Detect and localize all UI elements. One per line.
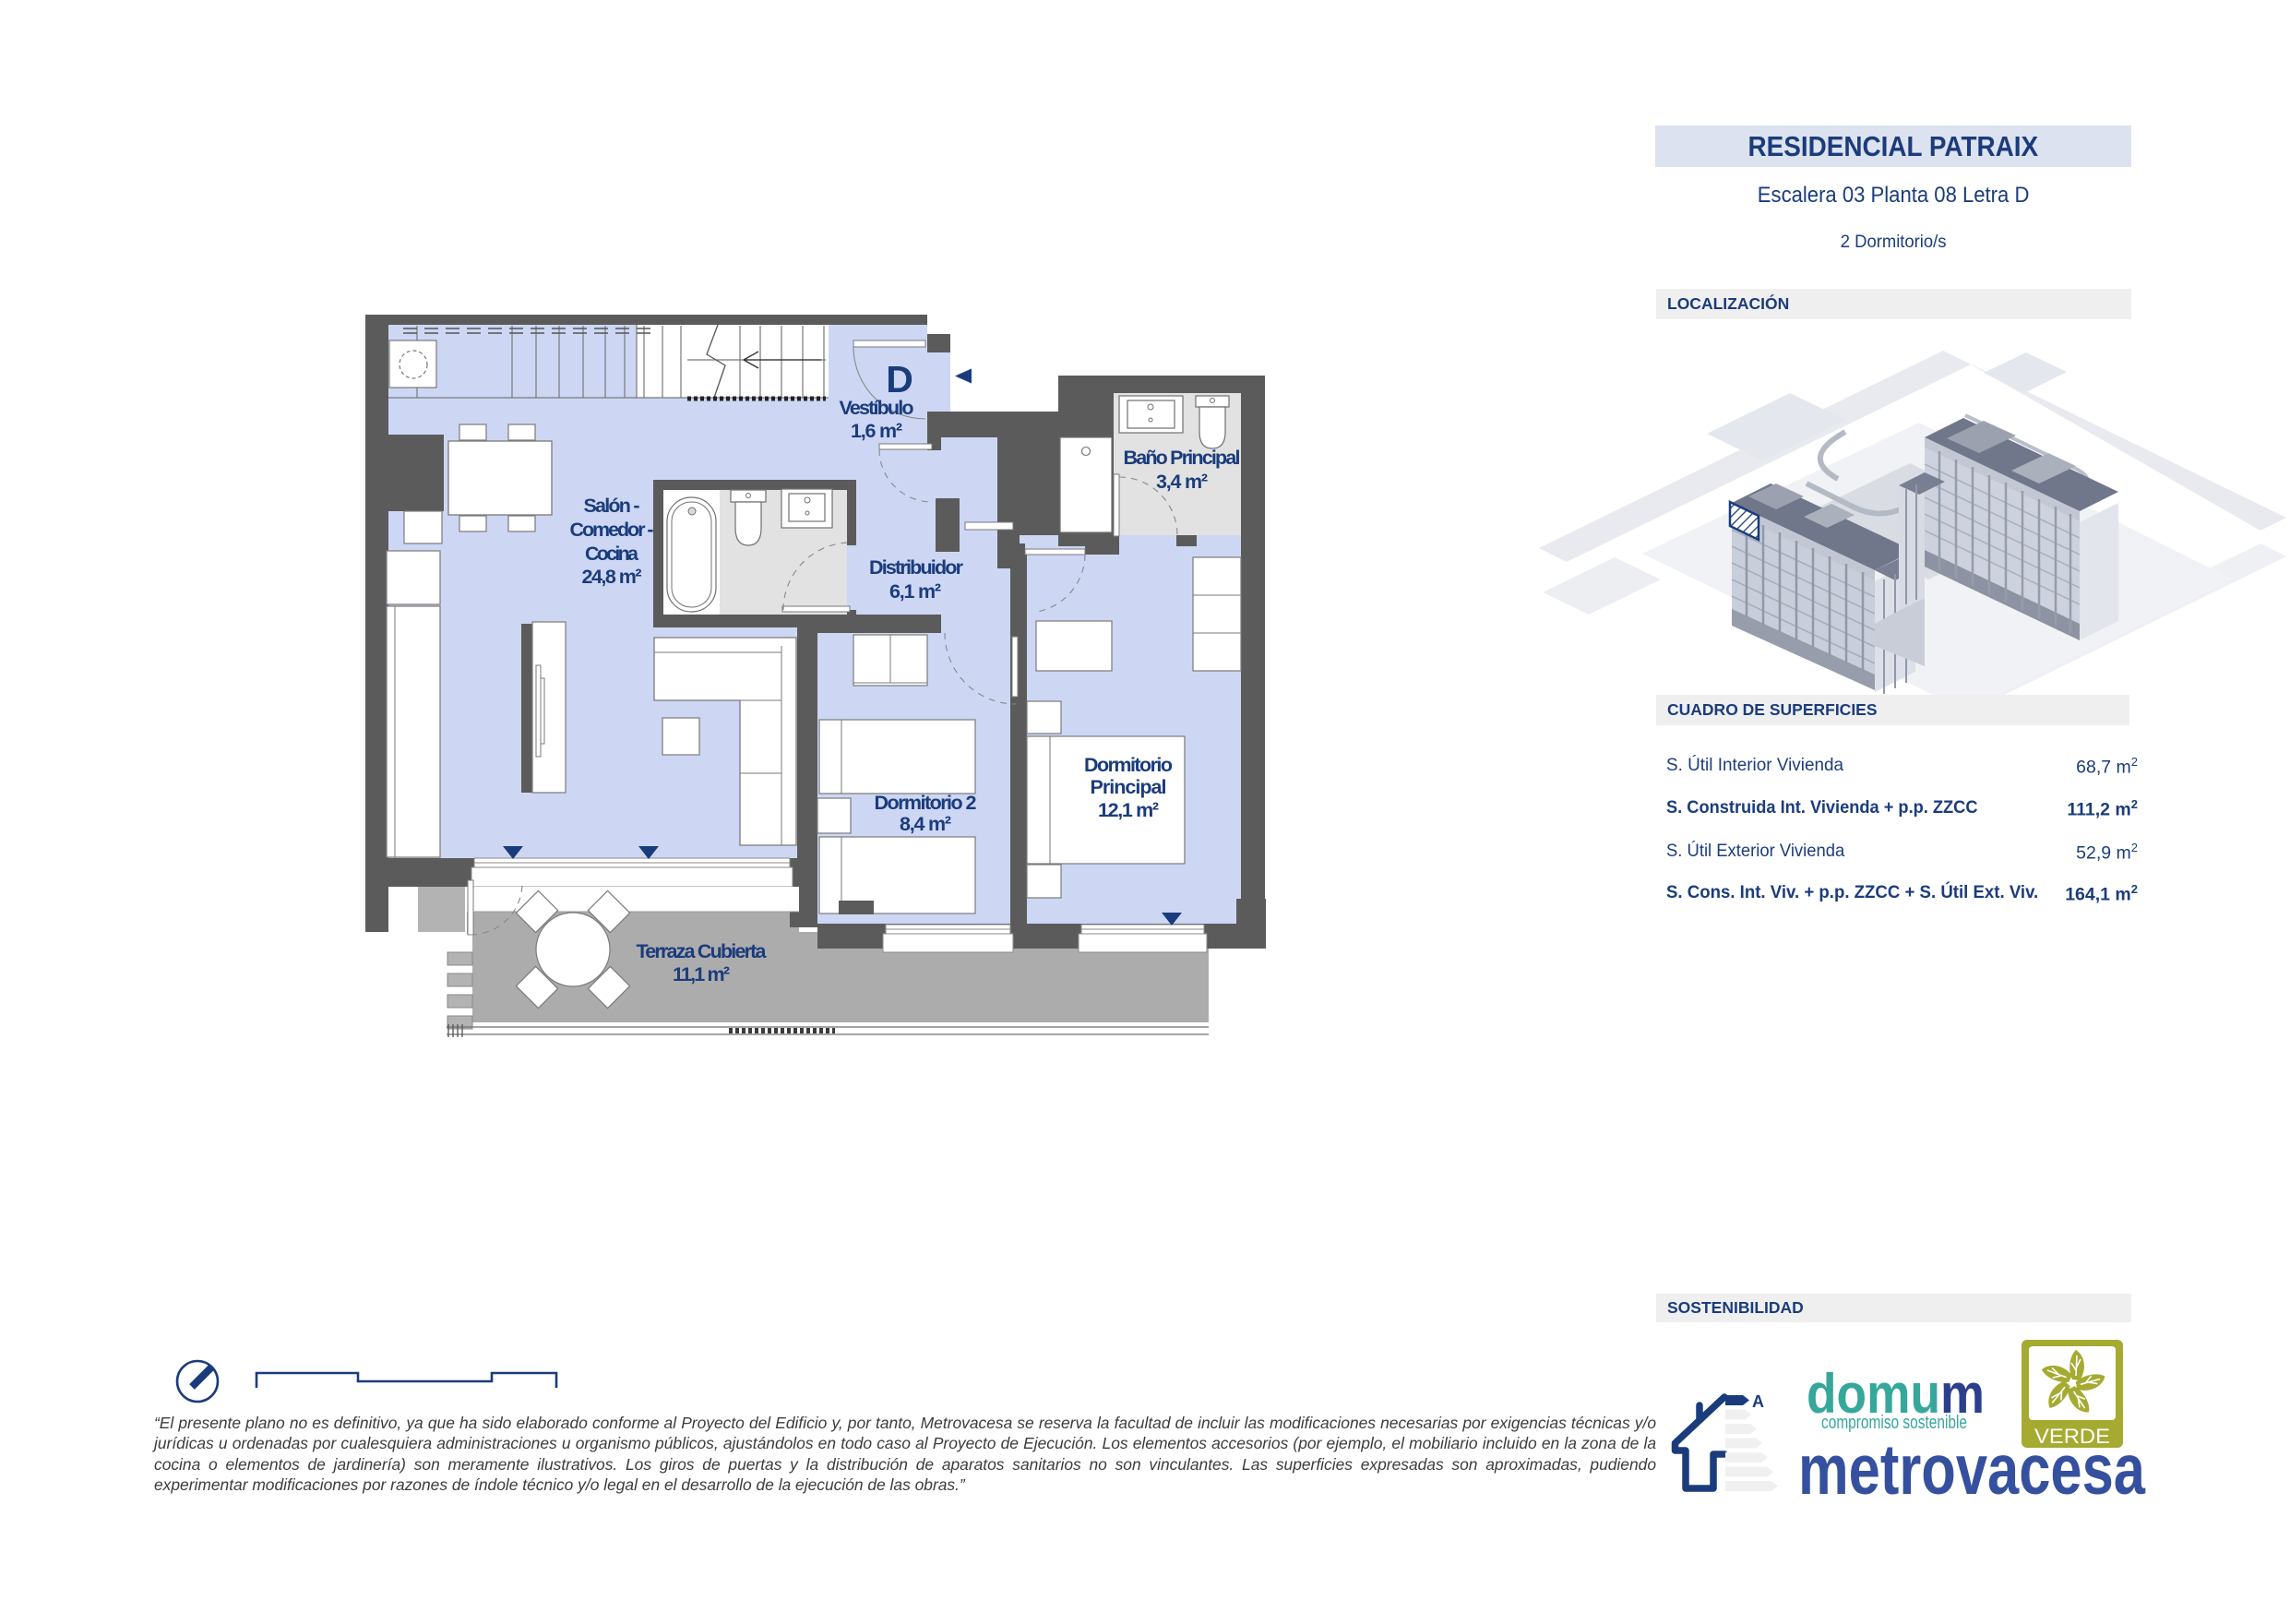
svg-text:D: D	[886, 358, 913, 400]
svg-text:8,4 m²: 8,4 m²	[900, 813, 951, 835]
svg-text:A: A	[1752, 1392, 1764, 1411]
svg-text:Terraza Cubierta: Terraza Cubierta	[637, 940, 768, 962]
svg-text:11,1 m²: 11,1 m²	[673, 963, 730, 985]
svg-text:12,1 m²: 12,1 m²	[1098, 799, 1159, 821]
svg-text:Cocina: Cocina	[585, 543, 639, 565]
svg-text:1,6 m²: 1,6 m²	[851, 420, 902, 442]
svg-text:Principal: Principal	[1091, 776, 1167, 798]
svg-text:Salón -: Salón -	[584, 495, 640, 517]
svg-text:3,4 m²: 3,4 m²	[1156, 471, 1208, 493]
svg-text:Comedor -: Comedor -	[570, 519, 654, 541]
svg-text:Baño Principal: Baño Principal	[1124, 447, 1241, 469]
svg-text:6,1 m²: 6,1 m²	[889, 580, 941, 603]
svg-text:Dormitorio 2: Dormitorio 2	[875, 792, 977, 814]
svg-text:Distribuidor: Distribuidor	[869, 556, 964, 579]
svg-text:Dormitorio: Dormitorio	[1084, 754, 1173, 776]
svg-text:metrovacesa: metrovacesa	[1798, 1430, 2146, 1510]
svg-text:24,8 m²: 24,8 m²	[582, 566, 642, 588]
svg-text:Vestíbulo: Vestíbulo	[840, 397, 914, 419]
